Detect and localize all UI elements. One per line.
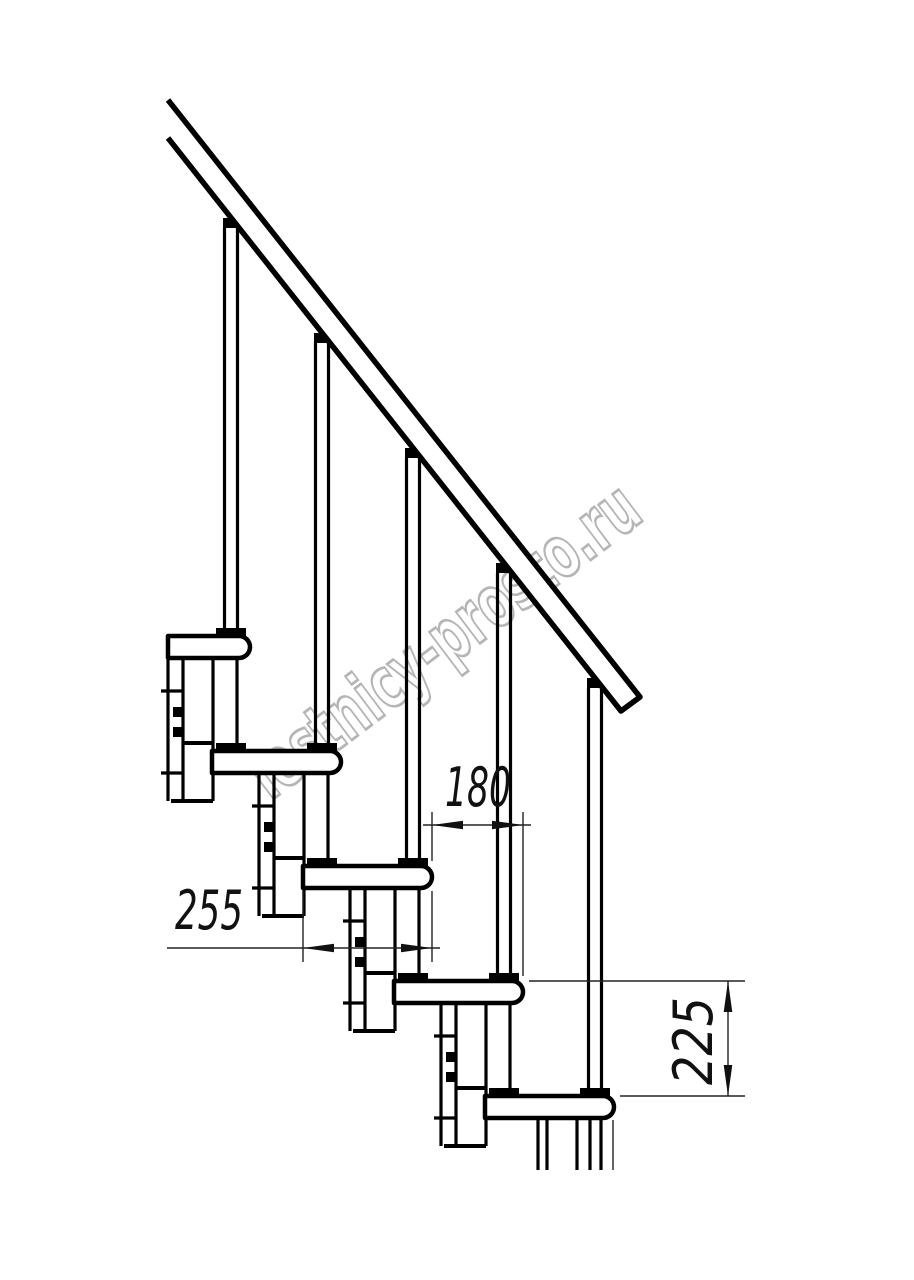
support-module-5 <box>538 1118 613 1170</box>
dimension-value-255: 255 <box>175 879 243 942</box>
dimension-tread-depth: 255 <box>167 879 440 962</box>
dimension-step-run: 180 <box>423 756 531 976</box>
baluster-foot-flange <box>398 858 428 866</box>
arrow-left-icon <box>303 944 334 953</box>
support-module-1 <box>161 658 246 801</box>
tread-1 <box>168 636 250 658</box>
baluster-foot-flange <box>216 628 246 636</box>
baluster-5 <box>580 678 610 1096</box>
tread-5 <box>485 1096 614 1118</box>
bolt-icon <box>264 842 273 852</box>
dimension-value-180: 180 <box>445 756 511 819</box>
dimension-step-rise: 225 <box>529 981 745 1096</box>
baluster-foot-flange <box>489 973 519 981</box>
baluster-foot-flange <box>307 743 337 751</box>
dimension-value-225: 225 <box>662 997 725 1085</box>
baluster-1 <box>216 218 246 636</box>
support-module-3 <box>343 888 428 1031</box>
support-module-4 <box>434 1003 519 1146</box>
tread-3 <box>303 866 432 888</box>
bolt-icon <box>173 707 182 717</box>
bolt-icon <box>355 957 364 967</box>
bolt-icon <box>355 937 364 947</box>
baluster-foot-flange <box>580 1088 610 1096</box>
staircase-technical-drawing: lestnicy-prosto.ru <box>0 0 914 1280</box>
bolt-icon <box>173 727 182 737</box>
arrow-right-icon <box>492 821 523 830</box>
arrow-left-icon <box>432 821 463 830</box>
tread-4 <box>394 981 523 1003</box>
bolt-icon <box>264 822 273 832</box>
bolt-icon <box>446 1072 455 1082</box>
arrow-right-icon <box>401 944 432 953</box>
tread-2 <box>212 751 341 773</box>
bolt-icon <box>446 1052 455 1062</box>
